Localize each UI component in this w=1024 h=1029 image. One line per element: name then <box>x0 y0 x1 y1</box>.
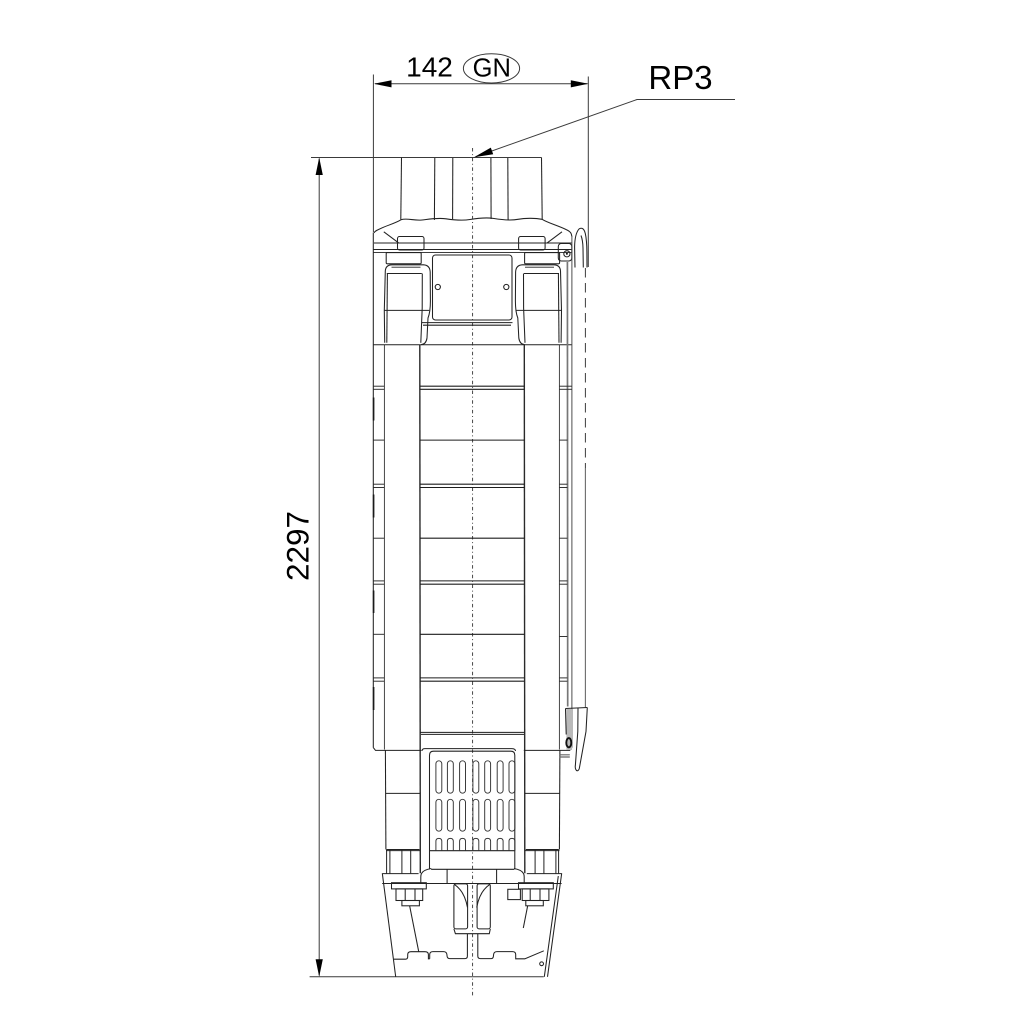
svg-text:RP3: RP3 <box>648 59 712 96</box>
svg-text:2297: 2297 <box>280 511 316 581</box>
svg-text:142: 142 <box>406 52 453 83</box>
svg-text:GN: GN <box>473 55 511 83</box>
